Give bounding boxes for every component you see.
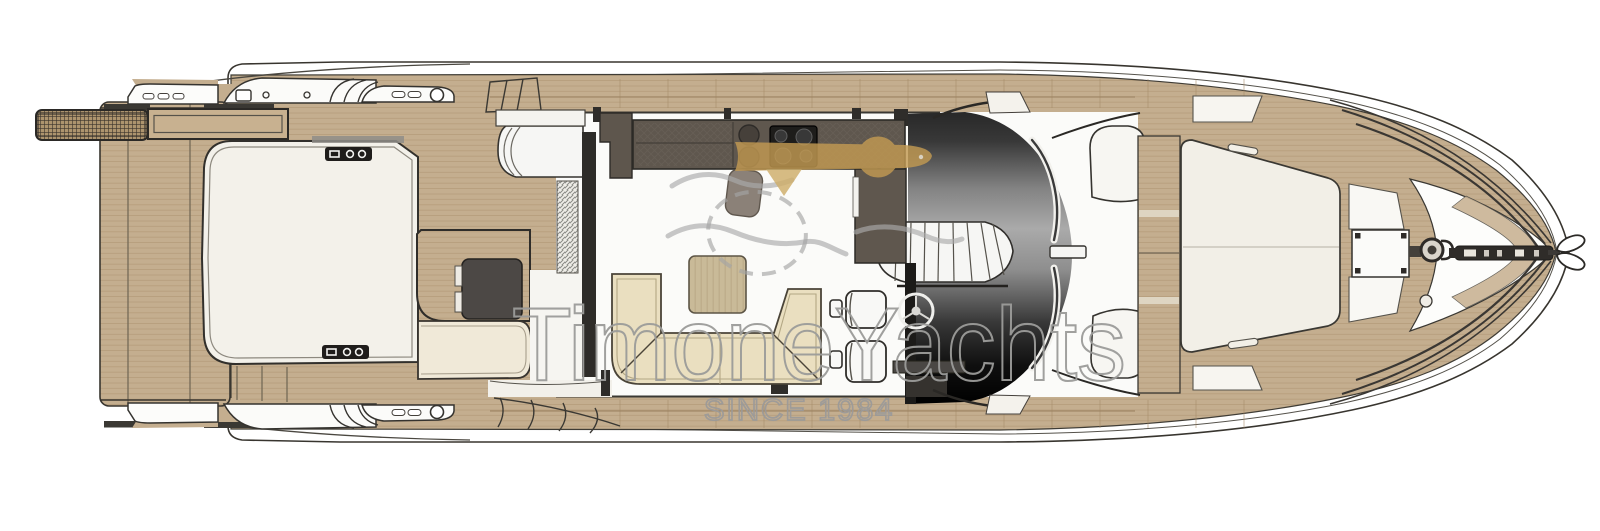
svg-text:SINCE 1984: SINCE 1984 bbox=[704, 392, 894, 427]
svg-text:TimoneYachts: TimoneYachts bbox=[512, 287, 1126, 403]
